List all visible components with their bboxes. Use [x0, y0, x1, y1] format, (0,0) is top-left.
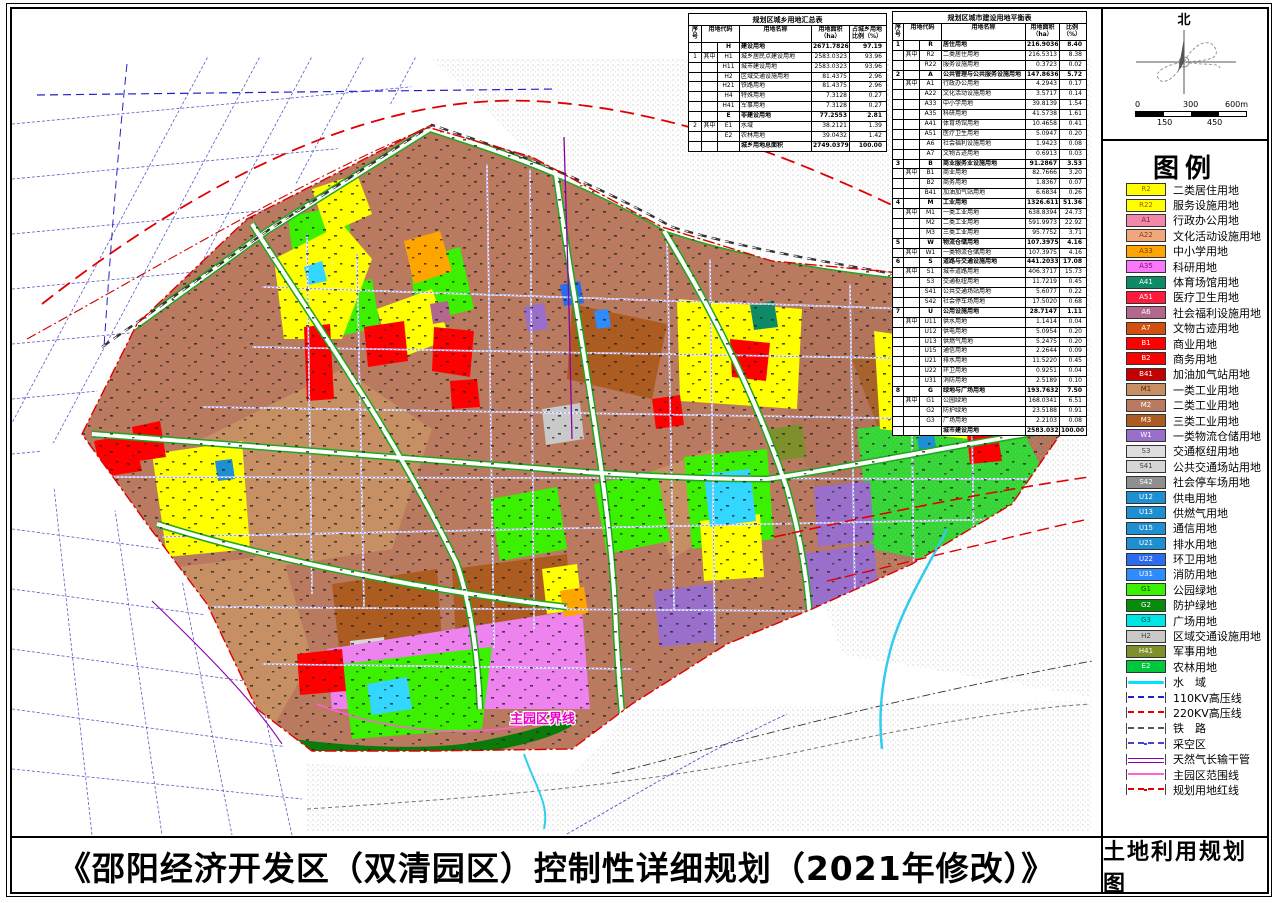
legend-color-swatch: M2: [1126, 399, 1166, 412]
legend-title: 图例: [1103, 148, 1267, 185]
scale-0: 0: [1135, 100, 1140, 109]
legend-item: 铁 路: [1126, 721, 1268, 736]
legend-color-swatch: H41: [1126, 645, 1166, 658]
legend-color-swatch: A35: [1126, 260, 1166, 273]
table-row: S41 公共交通场站用地 5.60770.22: [893, 287, 1086, 297]
table-row: 1R 居住用地 216.90368.40: [893, 40, 1086, 50]
legend-color-swatch: U22: [1126, 553, 1166, 566]
legend-item: A35 科研用地: [1126, 259, 1268, 274]
legend-item-label: 中小学用地: [1173, 243, 1228, 259]
legend-item: U21 排水用地: [1126, 536, 1268, 551]
legend-item-label: 天然气长输干管: [1173, 751, 1250, 767]
legend-item-label: 规划用地红线: [1173, 782, 1239, 798]
legend-item: U12 供电用地: [1126, 490, 1268, 505]
legend-item-label: 供燃气用地: [1173, 505, 1228, 521]
legend-item-label: 科研用地: [1173, 259, 1217, 275]
table-row: A35 科研用地 41.57381.61: [893, 109, 1086, 119]
legend-item-label: 加油加气站用地: [1173, 366, 1250, 382]
legend-item: M1 一类工业用地: [1126, 382, 1268, 397]
table-row: S42 社会停车场用地 17.50200.68: [893, 297, 1086, 307]
legend-item: A7 文物古迹用地: [1126, 321, 1268, 336]
table-row: H 建设用地 2671.782697.19: [689, 42, 886, 52]
table-row: 城市建设用地 2583.0323100.00: [893, 426, 1086, 436]
table-row: A51 医疗卫生用地 5.09470.20: [893, 129, 1086, 139]
table-row: U15 通信用地 2.26440.09: [893, 346, 1086, 356]
legend-line-symbol: [1126, 754, 1166, 765]
table-row: 3B 商业服务业设施用地 91.28673.53: [893, 159, 1086, 169]
legend-item-label: 服务设施用地: [1173, 197, 1239, 213]
table-row: U12 供电用地 5.09540.20: [893, 327, 1086, 337]
legend-item: H41 军事用地: [1126, 644, 1268, 659]
legend-item: S3 交通枢纽用地: [1126, 444, 1268, 459]
table-row: 其中S1 城市道路用地 406.371715.73: [893, 267, 1086, 277]
table-row: A6 社会福利设施用地 1.94230.08: [893, 139, 1086, 149]
table2-title: 规划区城市建设用地平衡表: [893, 12, 1086, 23]
legend-item: W1 一类物流仓储用地: [1126, 428, 1268, 443]
legend: R2 二类居住用地 R22 服务设施用地 A1 行政办公用地 A22 文化活动设…: [1126, 182, 1268, 798]
legend-item: B1 商业用地: [1126, 336, 1268, 351]
legend-item-label: 社会停车场用地: [1173, 474, 1250, 490]
legend-item-label: 行政办公用地: [1173, 212, 1239, 228]
table-row: 其中W1 一类物流仓储用地 107.39754.16: [893, 248, 1086, 258]
table1-header: 序号用地代码 用地名称用地面积（ha）占城乡用地比例（%）: [689, 25, 886, 42]
legend-item-label: 排水用地: [1173, 536, 1217, 552]
legend-item-label: 环卫用地: [1173, 551, 1217, 567]
legend-item-label: 文物古迹用地: [1173, 320, 1239, 336]
table1-body: H 建设用地 2671.782697.19 1其中H1 城乡居民点建设用地 25…: [689, 42, 886, 151]
compass-box-divider: [1103, 139, 1267, 141]
legend-item: E2 农林用地: [1126, 659, 1268, 674]
scale-bar: 0 300 600m 150 450: [1135, 100, 1245, 130]
legend-item-label: 防护绿地: [1173, 597, 1217, 613]
legend-color-swatch: M1: [1126, 383, 1166, 396]
legend-item: 采空区: [1126, 736, 1268, 751]
legend-color-swatch: S3: [1126, 445, 1166, 458]
legend-item: U13 供燃气用地: [1126, 505, 1268, 520]
table2-body: 1R 居住用地 216.90368.40 其中R2 二类居住用地 216.531…: [893, 40, 1086, 436]
legend-item-label: 体育场馆用地: [1173, 274, 1239, 290]
legend-line-list: 水 域 110KV高压线 220KV高压线 铁 路: [1126, 675, 1268, 798]
legend-color-swatch: U13: [1126, 506, 1166, 519]
legend-color-swatch: G3: [1126, 614, 1166, 627]
legend-item-label: 二类工业用地: [1173, 397, 1239, 413]
legend-item-label: 水 域: [1173, 674, 1206, 690]
legend-item-label: 一类工业用地: [1173, 382, 1239, 398]
legend-item: A22 文化活动设施用地: [1126, 228, 1268, 243]
legend-item-label: 供电用地: [1173, 490, 1217, 506]
plan-sheet: 主园区界线 规划区城乡用地汇总表 序号用地代码 用地名称用地面积（ha）占城乡用…: [0, 0, 1278, 903]
table-row: M2 二类工业用地 591.997322.92: [893, 218, 1086, 228]
legend-item: A41 体育场馆用地: [1126, 274, 1268, 289]
table-row: 其中B1 商业用地 82.76663.20: [893, 168, 1086, 178]
legend-item-label: 110KV高压线: [1173, 690, 1242, 706]
table-row: 其中A1 行政办公用地 4.29430.17: [893, 79, 1086, 89]
compass-rose-icon: [1124, 28, 1244, 98]
legend-item: U15 通信用地: [1126, 521, 1268, 536]
table-row: A7 文物古迹用地 0.69130.03: [893, 149, 1086, 159]
table-row: 4M 工业用地 1326.611951.36: [893, 198, 1086, 208]
table-row: M3 三类工业用地 95.77523.71: [893, 228, 1086, 238]
table-row: H41 军事用地 7.31280.27: [689, 101, 886, 111]
legend-item: 水 域: [1126, 675, 1268, 690]
map-title-box: 土地利用规划图: [1103, 838, 1267, 893]
legend-item-label: 商务用地: [1173, 351, 1217, 367]
table-row: U21 排水用地 11.52200.45: [893, 356, 1086, 366]
table-row: G3 广场用地 2.21030.08: [893, 416, 1086, 426]
legend-item: R22 服务设施用地: [1126, 197, 1268, 212]
legend-item: 天然气长输干管: [1126, 751, 1268, 766]
legend-item: 110KV高压线: [1126, 690, 1268, 705]
legend-item: M2 二类工业用地: [1126, 397, 1268, 412]
legend-item: R2 二类居住用地: [1126, 182, 1268, 197]
table-row: S3 交通枢纽用地 11.72190.45: [893, 277, 1086, 287]
table-row: 城乡用地总面积 2749.0379100.00: [689, 141, 886, 151]
legend-item-label: 广场用地: [1173, 613, 1217, 629]
legend-item: A33 中小学用地: [1126, 244, 1268, 259]
table2-header: 序号用地代码 用地名称用地面积（ha）比例（%）: [893, 23, 1086, 40]
table-row: 其中G1 公园绿地 168.03416.51: [893, 396, 1086, 406]
legend-color-swatch: R22: [1126, 199, 1166, 212]
legend-color-swatch: R2: [1126, 183, 1166, 196]
legend-item: B41 加油加气站用地: [1126, 367, 1268, 382]
legend-color-swatch: H2: [1126, 630, 1166, 643]
legend-color-swatch: A33: [1126, 245, 1166, 258]
legend-color-swatch: A22: [1126, 229, 1166, 242]
table-row: 其中M1 一类工业用地 638.839424.73: [893, 208, 1086, 218]
legend-item: H2 区域交通设施用地: [1126, 628, 1268, 643]
table-row: B41 加油加气站用地 6.68340.26: [893, 188, 1086, 198]
legend-item-label: 公共交通场站用地: [1173, 459, 1261, 475]
legend-item: 主园区范围线: [1126, 767, 1268, 782]
legend-line-symbol: [1126, 723, 1166, 734]
scale-450: 450: [1207, 118, 1222, 127]
legend-item-label: 农林用地: [1173, 659, 1217, 675]
legend-item-label: 主园区范围线: [1173, 767, 1239, 783]
legend-color-swatch: U31: [1126, 568, 1166, 581]
scale-150: 150: [1157, 118, 1172, 127]
legend-color-swatch: E2: [1126, 660, 1166, 673]
legend-color-swatch: G1: [1126, 583, 1166, 596]
legend-color-swatch: W1: [1126, 429, 1166, 442]
legend-line-symbol: [1126, 769, 1166, 780]
north-label: 北: [1103, 9, 1265, 28]
table-row: E2 农林用地 39.04321.42: [689, 131, 886, 141]
scale-600m: 600m: [1225, 100, 1248, 109]
legend-item: 220KV高压线: [1126, 705, 1268, 720]
legend-color-swatch: B2: [1126, 352, 1166, 365]
table-row: 2其中E1 水域 38.21211.39: [689, 121, 886, 131]
legend-color-swatch: S41: [1126, 460, 1166, 473]
legend-color-swatch: A41: [1126, 276, 1166, 289]
table-row: A22 文化活动设施用地 3.57170.14: [893, 89, 1086, 99]
table-row: 6S 道路与交通设施用地 441.203317.08: [893, 257, 1086, 267]
legend-item-label: 一类物流仓储用地: [1173, 428, 1261, 444]
park-boundary-label: 主园区界线: [510, 711, 575, 727]
legend-item: M3 三类工业用地: [1126, 413, 1268, 428]
legend-item-label: 二类居住用地: [1173, 182, 1239, 198]
legend-item: A6 社会福利设施用地: [1126, 305, 1268, 320]
legend-line-symbol: [1126, 677, 1166, 688]
legend-color-swatch: B1: [1126, 337, 1166, 350]
legend-item: B2 商务用地: [1126, 351, 1268, 366]
land-summary-table: 规划区城乡用地汇总表 序号用地代码 用地名称用地面积（ha）占城乡用地比例（%）…: [688, 13, 887, 152]
table-row: U13 供燃气用地 5.24750.20: [893, 337, 1086, 347]
table-row: R22 服务设施用地 0.37230.02: [893, 60, 1086, 70]
legend-item-label: 文化活动设施用地: [1173, 228, 1261, 244]
legend-line-symbol: [1126, 784, 1166, 795]
legend-item: 规划用地红线: [1126, 782, 1268, 797]
table-row: H2 区域交通设施用地 81.43752.96: [689, 72, 886, 82]
legend-color-swatch: A6: [1126, 306, 1166, 319]
legend-item-label: 区域交通设施用地: [1173, 628, 1261, 644]
legend-swatch-list: R2 二类居住用地 R22 服务设施用地 A1 行政办公用地 A22 文化活动设…: [1126, 182, 1268, 675]
legend-color-swatch: A1: [1126, 214, 1166, 227]
legend-color-swatch: B41: [1126, 368, 1166, 381]
legend-item: S42 社会停车场用地: [1126, 474, 1268, 489]
legend-item: S41 公共交通场站用地: [1126, 459, 1268, 474]
table-row: U22 环卫用地 0.92510.04: [893, 366, 1086, 376]
legend-item-label: 公园绿地: [1173, 582, 1217, 598]
table-row: H11 城市建设用地 2583.032393.96: [689, 62, 886, 72]
legend-item: A51 医疗卫生用地: [1126, 290, 1268, 305]
table-row: H21 铁路用地 81.43752.96: [689, 81, 886, 91]
legend-item: G2 防护绿地: [1126, 598, 1268, 613]
legend-item: U22 环卫用地: [1126, 551, 1268, 566]
table-row: B2 商务用地 1.83670.07: [893, 178, 1086, 188]
table-row: A33 中小学用地 39.81391.54: [893, 99, 1086, 109]
legend-color-swatch: G2: [1126, 599, 1166, 612]
scale-bar-segments: [1135, 111, 1247, 117]
legend-color-swatch: A51: [1126, 291, 1166, 304]
legend-item: A1 行政办公用地: [1126, 213, 1268, 228]
legend-color-swatch: M3: [1126, 414, 1166, 427]
legend-item-label: 通信用地: [1173, 520, 1217, 536]
legend-item: U31 消防用地: [1126, 567, 1268, 582]
legend-item-label: 医疗卫生用地: [1173, 289, 1239, 305]
table1-title: 规划区城乡用地汇总表: [689, 14, 886, 25]
table-row: G2 防护绿地 23.51880.91: [893, 406, 1086, 416]
legend-color-swatch: U12: [1126, 491, 1166, 504]
legend-line-symbol: [1126, 707, 1166, 718]
legend-color-swatch: S42: [1126, 476, 1166, 489]
table-row: 其中R2 二类居住用地 216.53138.38: [893, 50, 1086, 60]
table-row: 其中U11 供水用地 1.14140.04: [893, 317, 1086, 327]
table-row: 1其中H1 城乡居民点建设用地 2583.032393.96: [689, 52, 886, 62]
legend-item-label: 交通枢纽用地: [1173, 443, 1239, 459]
legend-line-symbol: [1126, 738, 1166, 749]
legend-item: G3 广场用地: [1126, 613, 1268, 628]
legend-item-label: 采空区: [1173, 736, 1206, 752]
table-row: 5W 物流仓储用地 107.39754.16: [893, 238, 1086, 248]
legend-item-label: 商业用地: [1173, 336, 1217, 352]
table-row: U31 消防用地 2.51890.10: [893, 376, 1086, 386]
scale-300: 300: [1183, 100, 1198, 109]
legend-item-label: 三类工业用地: [1173, 413, 1239, 429]
table-row: 2A 公共管理与公共服务设施用地 147.86365.72: [893, 70, 1086, 80]
legend-color-swatch: U21: [1126, 537, 1166, 550]
sheet-title: 《邵阳经济开发区（双清园区）控制性详细规划（2021年修改）》: [12, 838, 1101, 893]
legend-line-symbol: [1126, 692, 1166, 703]
table-row: E 非建设用地 77.25532.81: [689, 111, 886, 121]
legend-item-label: 社会福利设施用地: [1173, 305, 1261, 321]
table-row: H4 特殊用地 7.31280.27: [689, 91, 886, 101]
table-row: 8G 绿地与广场用地 193.76327.50: [893, 386, 1086, 396]
table-row: 7U 公用设施用地 28.71471.11: [893, 307, 1086, 317]
table-row: A41 体育场馆用地 10.46580.41: [893, 119, 1086, 129]
legend-item-label: 军事用地: [1173, 643, 1217, 659]
land-balance-table: 规划区城市建设用地平衡表 序号用地代码 用地名称用地面积（ha）比例（%） 1R…: [892, 11, 1087, 436]
legend-item-label: 铁 路: [1173, 720, 1206, 736]
legend-color-swatch: A7: [1126, 322, 1166, 335]
legend-item: G1 公园绿地: [1126, 582, 1268, 597]
legend-item-label: 消防用地: [1173, 566, 1217, 582]
legend-color-swatch: U15: [1126, 522, 1166, 535]
legend-item-label: 220KV高压线: [1173, 705, 1242, 721]
